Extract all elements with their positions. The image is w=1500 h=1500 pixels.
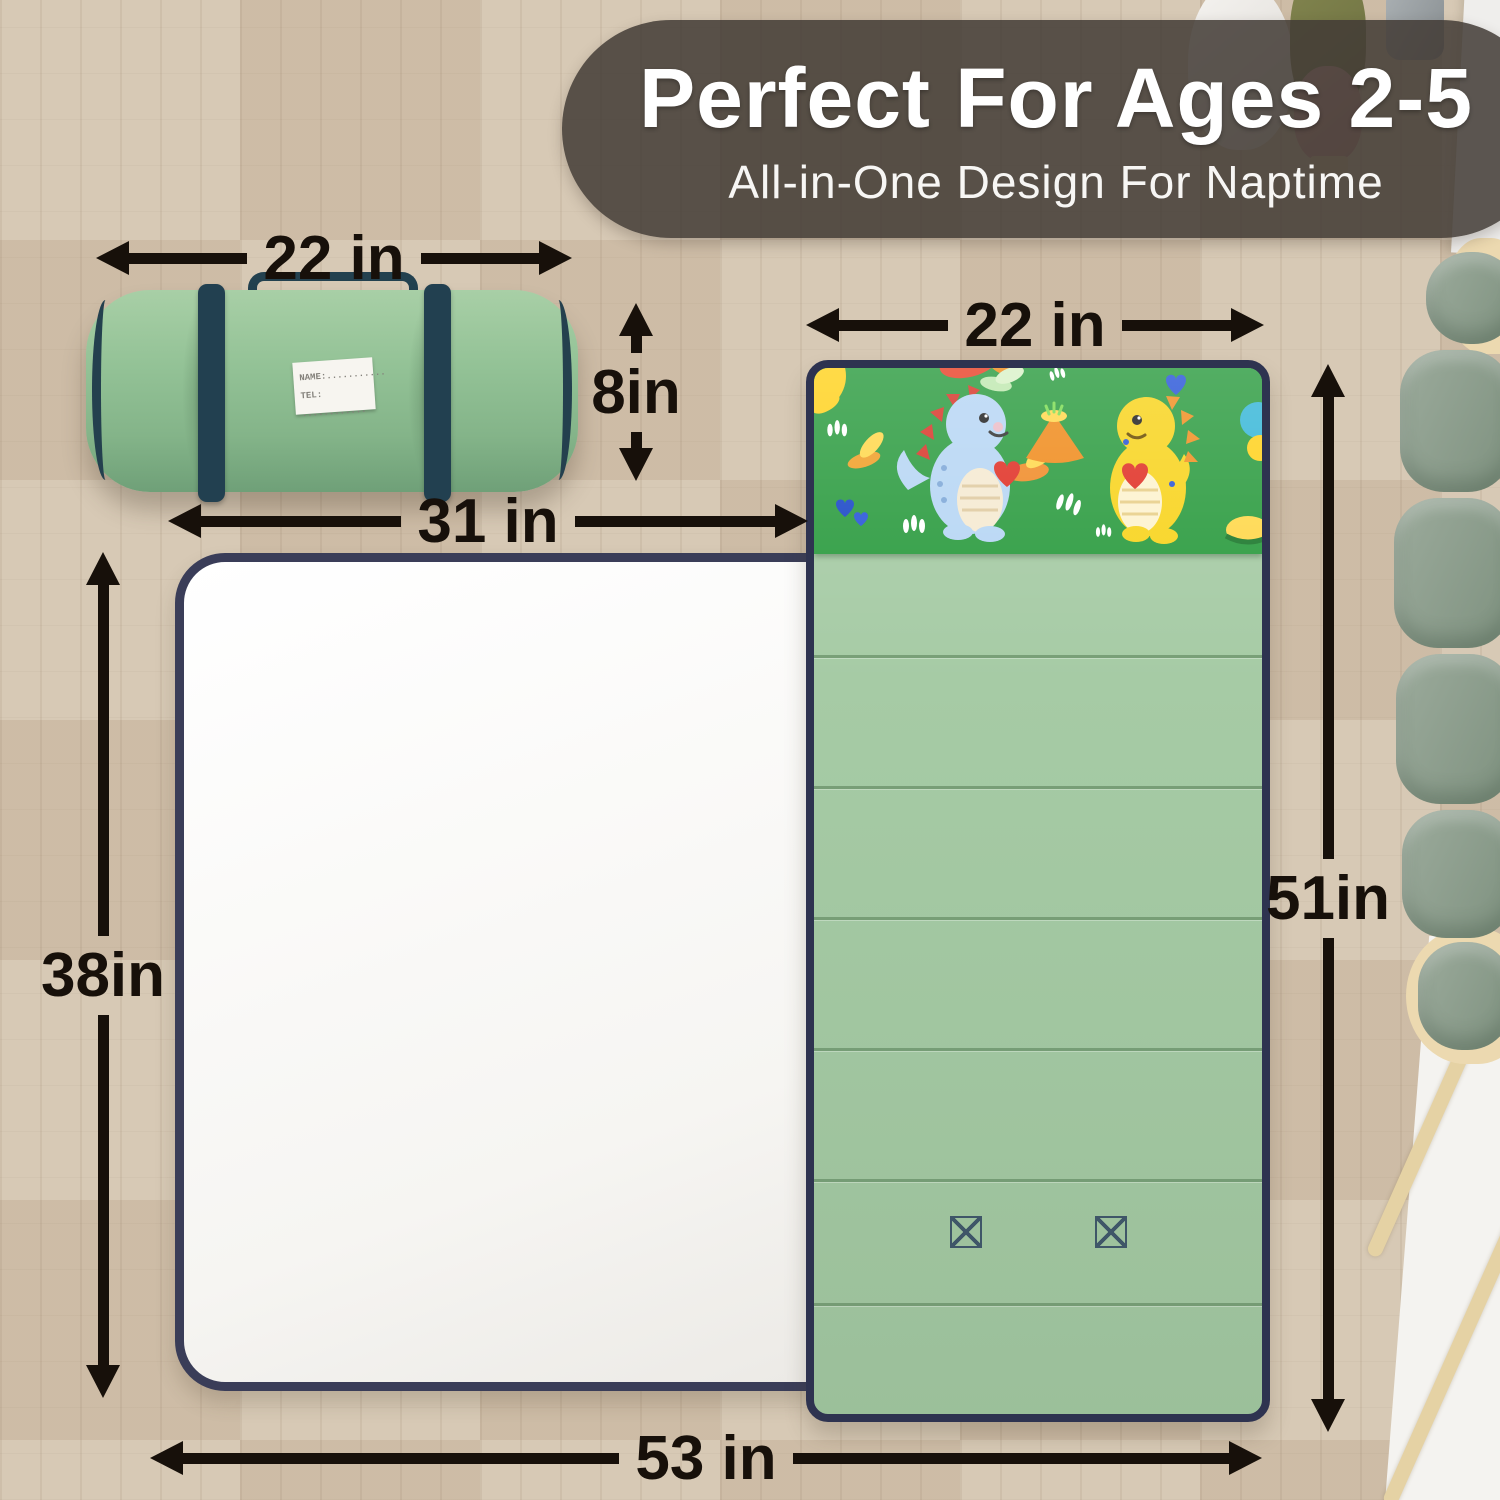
dimension-line <box>129 253 247 264</box>
roll-strap <box>198 284 225 502</box>
arrow-up-icon <box>86 552 120 585</box>
mat-quilt-seam <box>814 1303 1262 1306</box>
roll-navy-edge <box>92 300 119 480</box>
arrow-up-icon <box>1311 364 1345 397</box>
headline-banner: Perfect For Ages 2-5 All-in-One Design F… <box>562 20 1500 238</box>
roll-strap <box>424 284 451 502</box>
banner-title: Perfect For Ages 2-5 <box>639 50 1473 147</box>
arrow-down-icon <box>86 1365 120 1398</box>
dimension-line <box>575 516 775 527</box>
mat-quilt-seam <box>814 917 1262 920</box>
dimension-line <box>839 320 948 331</box>
dimension-label: 53 in <box>635 1423 776 1494</box>
nap-mat-blanket <box>175 553 823 1391</box>
dimension-mat-length: 51in <box>1258 364 1398 1432</box>
dimension-line <box>631 432 642 449</box>
strap-stitch-x-mark <box>1095 1216 1127 1248</box>
dimension-label: 22 in <box>964 290 1105 361</box>
arrow-down-icon <box>1311 1399 1345 1432</box>
dimension-pillow-width: 22 in <box>806 303 1264 347</box>
dimension-label: 31 in <box>417 486 558 557</box>
arrow-up-icon <box>619 303 653 336</box>
dimension-pillow-height: 8in <box>562 303 710 481</box>
dimension-roll-width: 22 in <box>96 236 572 280</box>
dimension-label: 8in <box>591 357 681 428</box>
name-tag: NAME:........... TEL: ............ <box>292 357 375 414</box>
chair-cushion <box>1400 350 1500 492</box>
chair-cushion <box>1426 252 1500 344</box>
dimension-line <box>183 1453 619 1464</box>
nap-mat <box>806 360 1270 1422</box>
mat-quilt-seam <box>814 786 1262 789</box>
dimension-line <box>98 1015 109 1366</box>
mat-quilt-seam <box>814 1048 1262 1051</box>
dimension-line <box>98 585 109 936</box>
chair-cushion <box>1396 654 1500 804</box>
dimension-line <box>793 1453 1229 1464</box>
chair-cushion <box>1418 942 1500 1050</box>
arrow-right-icon <box>775 504 808 538</box>
mat-quilt-seam <box>814 1179 1262 1182</box>
product-dimension-scene: NAME:........... TEL: ............ 22 in… <box>0 0 1500 1500</box>
name-tag-tel-line: TEL: ............ <box>300 383 370 424</box>
chair-cushion <box>1394 498 1500 648</box>
dimension-blanket-width: 31 in <box>168 499 808 543</box>
dimension-line <box>1323 397 1334 859</box>
arrow-left-icon <box>168 504 201 538</box>
dimension-total-length: 53 in <box>150 1436 1262 1480</box>
dimension-line <box>1323 938 1334 1400</box>
dimension-label: 38in <box>41 940 165 1011</box>
arrow-down-icon <box>619 448 653 481</box>
arrow-left-icon <box>150 1441 183 1475</box>
dimension-blanket-height: 38in <box>33 552 173 1398</box>
arrow-right-icon <box>1229 1441 1262 1475</box>
arrow-right-icon <box>1231 308 1264 342</box>
mat-quilt-seam <box>814 655 1262 658</box>
mat-fabric-shading <box>814 368 1262 1414</box>
banner-subtitle: All-in-One Design For Naptime <box>728 155 1383 209</box>
arrow-left-icon <box>806 308 839 342</box>
dimension-label: 51in <box>1266 863 1390 934</box>
dimension-line <box>631 336 642 353</box>
dimension-line <box>1122 320 1231 331</box>
arrow-left-icon <box>96 241 129 275</box>
rolled-nap-mat: NAME:........... TEL: ............ <box>86 290 578 492</box>
arrow-right-icon <box>539 241 572 275</box>
strap-stitch-x-mark <box>950 1216 982 1248</box>
dimension-line <box>201 516 401 527</box>
dimension-label: 22 in <box>263 223 404 294</box>
chair-cushion <box>1402 810 1500 938</box>
dimension-line <box>421 253 539 264</box>
